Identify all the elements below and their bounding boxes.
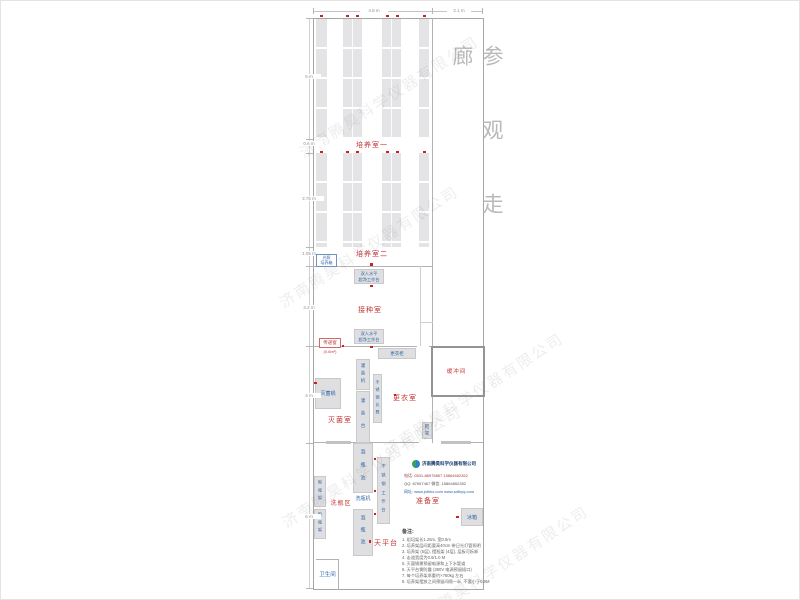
marker-dot (456, 516, 459, 519)
marker-dot (346, 151, 349, 154)
steel-worktable-label: 不锈钢工作台 (381, 464, 387, 516)
steel-worktable-box: 不锈钢工作台 (377, 457, 390, 524)
marker-dot (356, 151, 359, 154)
light-incubator-box: 光照 培养箱 (316, 254, 337, 267)
dimension-left-06m: 0.6 m (295, 141, 323, 146)
culture-rack (343, 19, 362, 139)
notes-block: 备注: 1. 组培架长1.25m, 宽0.5m2. 培养架层间距要高40cm 带… (402, 528, 494, 585)
wall-thick-segment (441, 441, 471, 444)
room-label-changing: 更衣室 (383, 393, 427, 403)
room-label-toilet: 卫生间 (316, 570, 339, 578)
dimension-tick (306, 247, 313, 248)
filling-machine-box: 灌装机 (356, 359, 370, 390)
marker-dot (356, 15, 359, 18)
anteroom-wall-v (420, 266, 421, 346)
clean-bench-label: 双人水平 超净工作台 (359, 331, 380, 341)
steel-bench-box: 不锈钢长凳 (373, 374, 382, 423)
soak-pool-label: 泡瓶池 (360, 515, 367, 551)
room-label-preparation: 准备室 (413, 496, 443, 506)
clean-bench-lower: 双人水平 超净工作台 (354, 329, 384, 344)
anteroom-wall-h (420, 322, 433, 323)
room-label-culture1: 培养室一 (341, 140, 403, 150)
clean-bench-label: 双人水平 超净工作台 (359, 271, 380, 281)
marker-dot (370, 346, 373, 349)
marker-dot (320, 151, 323, 154)
dimension-tick (313, 8, 314, 14)
company-phone: 电话: 0531-88975857 15864652352 (404, 473, 468, 479)
soak-pool-upper-box: 泡瓶池 (353, 443, 373, 493)
toilet-wall-top (316, 559, 339, 560)
pass-window-size: (0.6m²) (318, 349, 342, 354)
dimension-tick (306, 588, 313, 589)
wall-below-buffer (432, 395, 433, 443)
company-logo (412, 460, 420, 468)
filling-machine-label: 灌装机 (360, 363, 366, 386)
marker-dot (386, 15, 389, 18)
marker-dot (396, 15, 399, 18)
dimension-tick (432, 8, 433, 14)
dimension-tick (306, 346, 313, 347)
culture-rack (382, 153, 401, 247)
drying-rack-label: 晾瓶架 (317, 480, 323, 503)
bottle-washer-label: 洗瓶机 (351, 495, 375, 502)
left-dimension-line (309, 18, 310, 589)
dimension-top-width: 4.8 m (360, 8, 388, 13)
marker-dot (396, 151, 399, 154)
note-item: 8. 培养架摆放之间预留间隔一半, 不要小于0.9M (402, 579, 494, 585)
marker-dot (374, 513, 377, 516)
room-label-culture2: 培养室二 (341, 249, 403, 259)
marker-dot (423, 15, 426, 18)
marker-dot (320, 15, 323, 18)
wardrobe-label: 更衣柜 (390, 351, 404, 357)
dimension-top-corridor: 2.1 m (447, 8, 471, 13)
room-label-inoculation: 接种室 (345, 305, 395, 315)
culture-rack (316, 19, 327, 139)
company-name: 济南腾昊科学仪器有限公司 (422, 461, 476, 467)
dimension-left-32m: 3.2 m (295, 305, 323, 310)
marker-dot (374, 458, 377, 461)
dimension-left-6m: 6 m (297, 514, 321, 519)
notes-heading: 备注: (402, 528, 494, 535)
wardrobe-box: 更衣柜 (378, 348, 416, 359)
shoe-rack-label: 鞋架 (424, 424, 430, 437)
marker-dot (386, 151, 389, 154)
pass-window-box: 传递窗 (319, 338, 341, 348)
room-label-buffer: 缓冲间 (434, 367, 479, 375)
room-label-balance-table: 天平台 (372, 538, 400, 548)
autoclave-label: 灭菌锅 (320, 390, 335, 397)
marker-dot (423, 151, 426, 154)
fridge-box: 冰箱 (461, 508, 483, 526)
culture-rack (382, 19, 401, 139)
wall-thick-segment (326, 441, 351, 444)
marker-dot (369, 540, 372, 543)
fridge-label: 冰箱 (467, 514, 477, 521)
company-qq: QQ: 87657467 微信: 15864652352 (404, 481, 466, 487)
floor-plan-page: 济南腾昊科学仪器有限公司 济南腾昊科学仪器有限公司 济南腾昊科学仪器有限公司 济… (0, 0, 800, 600)
marker-dot (370, 285, 373, 288)
clean-bench-upper: 双人水平 超净工作台 (354, 269, 384, 284)
culture-rack (343, 153, 362, 247)
marker-dot (394, 394, 397, 397)
dimension-tick (306, 153, 313, 154)
steel-bench-label: 不锈钢长凳 (375, 380, 381, 418)
marker-dot (314, 382, 317, 385)
culture-rack (419, 153, 429, 247)
corridor-wall (432, 18, 433, 346)
marker-dot (346, 15, 349, 18)
dimension-left-375m: 3.75 m (294, 196, 324, 201)
culture-rack (419, 19, 429, 139)
dimension-tick (482, 8, 483, 14)
corridor-label: 参观走廊 (447, 45, 507, 325)
company-web: 网址: www.jnthkx.com www.sdthyq.com (404, 489, 474, 495)
shoe-rack-box: 鞋架 (422, 422, 432, 439)
marker-dot (370, 263, 373, 266)
soak-pool-lower-box: 泡瓶池 (353, 509, 373, 556)
marker-dot (374, 490, 377, 493)
dimension-tick (306, 139, 313, 140)
marker-dot (342, 345, 345, 348)
drying-rack-upper-box: 晾瓶架 (314, 476, 326, 507)
dimension-tick (306, 443, 313, 444)
dimension-left-4m: 4 m (297, 393, 321, 398)
notes-list: 1. 组培架长1.25m, 宽0.5m2. 培养架层间距要高40cm 带日光灯管… (402, 537, 494, 585)
dimension-tick (306, 266, 313, 267)
dimension-left-5m: 5 m (297, 74, 321, 79)
soak-pool-label: 泡瓶池 (360, 449, 367, 488)
dimension-tick (306, 18, 313, 19)
room-label-sterilization: 灭菌室 (318, 415, 362, 425)
